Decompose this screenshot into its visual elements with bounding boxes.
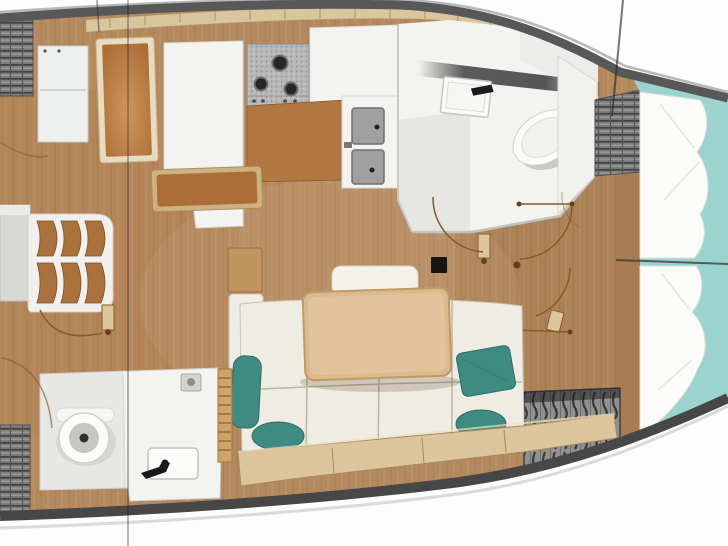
burner	[273, 56, 288, 71]
aft-locker-hatch-bottom	[0, 425, 30, 521]
galley-bench	[151, 166, 262, 212]
head-wash-basin	[440, 77, 494, 118]
sink-basin	[352, 150, 384, 184]
dining-table	[303, 287, 452, 380]
teal-pillow-square	[456, 345, 517, 398]
side-table	[228, 248, 262, 292]
aft-wash-basin	[141, 448, 198, 479]
shelf-locker-hatch	[595, 90, 640, 176]
aft-locker-hatch-top	[0, 20, 33, 96]
door-hinge	[481, 258, 487, 264]
shelf-ladder-trim	[218, 369, 232, 462]
aft-toilet	[56, 408, 116, 466]
drain	[370, 168, 375, 173]
shower-drain-icon	[181, 374, 201, 391]
engine-box	[0, 205, 30, 301]
aft-head	[40, 368, 221, 501]
burner	[285, 83, 298, 96]
head-door-leaf	[478, 234, 490, 258]
yacht-floorplan	[0, 0, 728, 546]
floorplan-canvas	[0, 0, 728, 546]
mast-post	[431, 257, 447, 273]
companionway-steps	[28, 214, 113, 312]
drain	[375, 125, 380, 130]
faucet-base	[344, 142, 352, 148]
head-floor-shading	[398, 110, 470, 232]
fridge-cabinet	[38, 46, 88, 142]
teal-pillow-left	[230, 355, 262, 428]
stove	[247, 44, 309, 106]
chart-table	[96, 37, 158, 163]
galley-sink-unit	[342, 96, 402, 188]
burner	[255, 78, 268, 91]
